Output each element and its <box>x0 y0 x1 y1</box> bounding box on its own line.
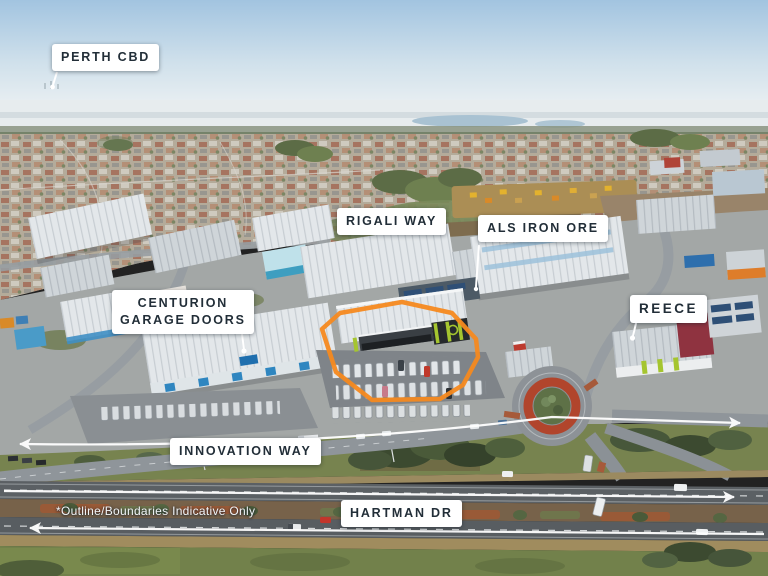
hartman-dr-east-arrow-icon <box>4 491 734 497</box>
label-innovation-way: INNOVATION WAY <box>170 438 321 465</box>
centurion-line2: GARAGE DOORS <box>120 313 246 327</box>
perth-cbd-pointer-icon <box>50 72 57 89</box>
centurion-line1: CENTURION <box>138 296 229 310</box>
label-hartman-dr: HARTMAN DR <box>341 500 462 527</box>
annotation-layer <box>0 0 768 576</box>
innovation-way-double-arrow-icon <box>20 417 740 444</box>
hartman-dr-west-arrow-icon <box>30 528 764 534</box>
subject-site-outline-icon <box>322 302 478 400</box>
label-rigali-way: RIGALI WAY <box>337 208 446 235</box>
label-reece: REECE <box>630 295 707 323</box>
label-als-iron-ore: ALS IRON ORE <box>478 215 608 242</box>
label-perth-cbd: PERTH CBD <box>52 44 159 71</box>
disclaimer-text: *Outline/Boundaries Indicative Only <box>56 504 255 518</box>
als-pointer-icon <box>474 245 479 291</box>
centurion-pointer-icon <box>241 334 246 354</box>
label-centurion-garage-doors: CENTURION GARAGE DOORS <box>112 290 254 334</box>
aerial-property-map: PERTH CBD RIGALI WAY ALS IRON ORE CENTUR… <box>0 0 768 576</box>
